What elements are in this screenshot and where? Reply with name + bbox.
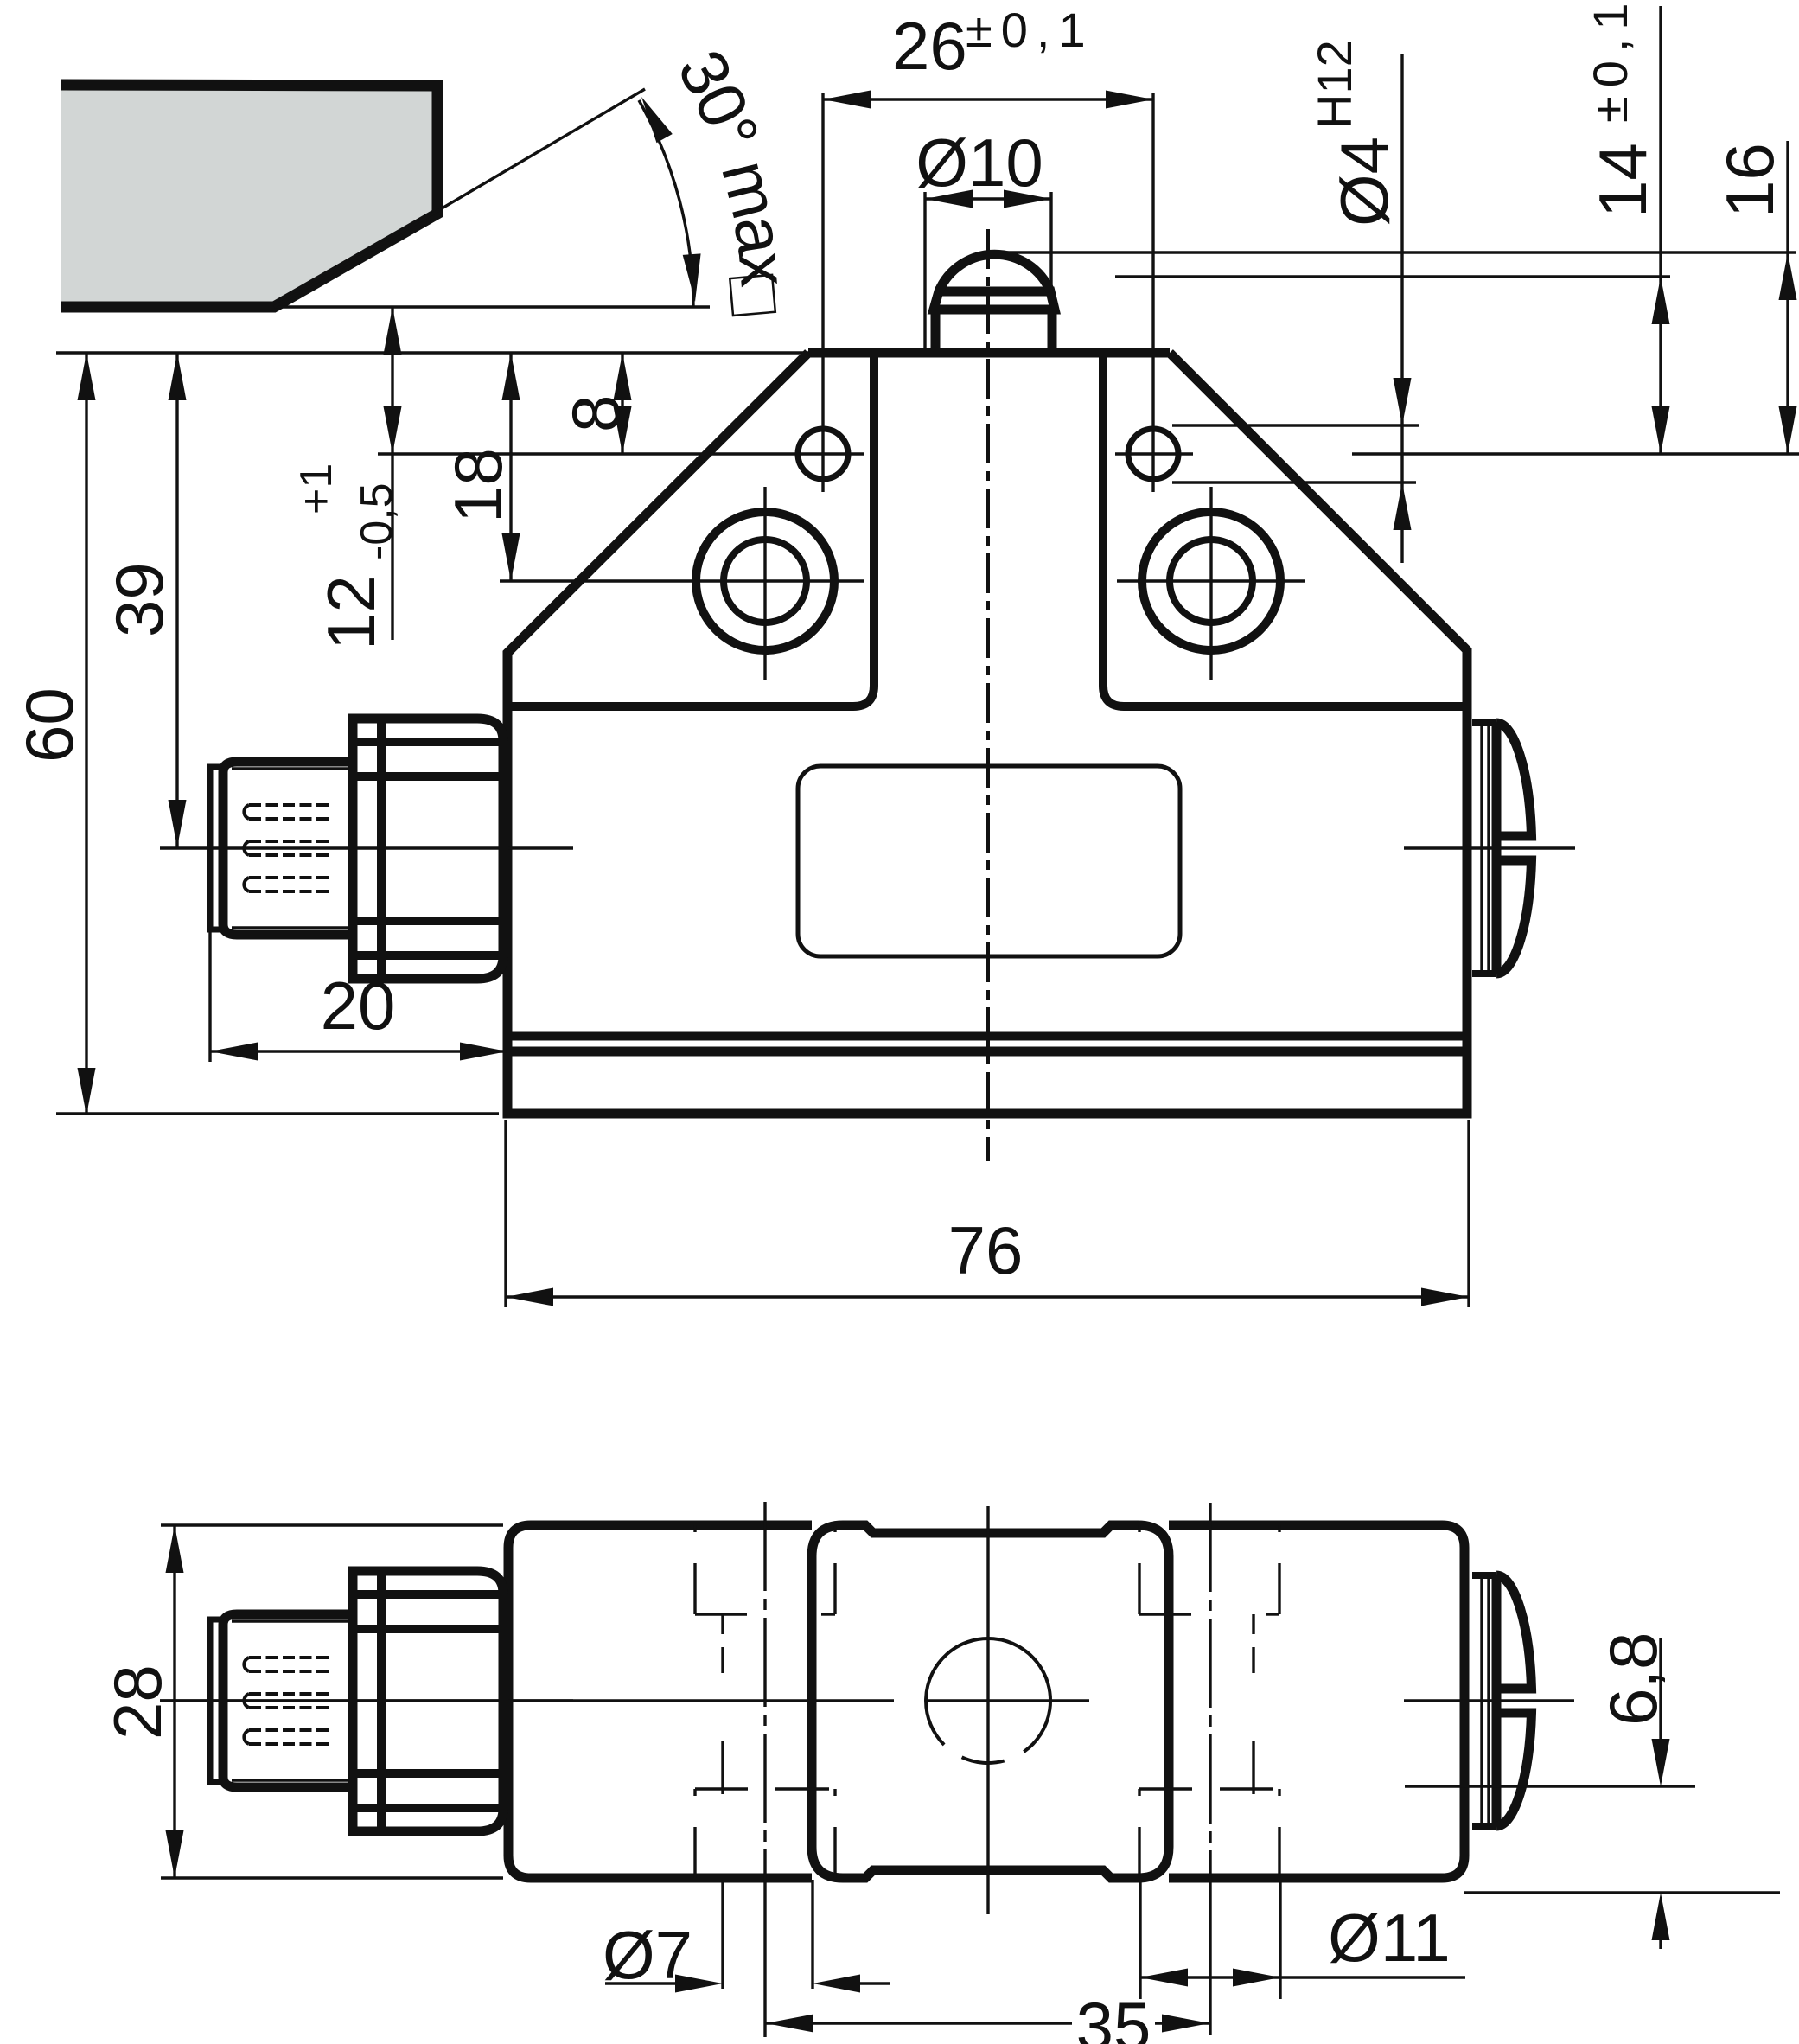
svg-text:Ø7: Ø7 <box>603 1917 692 1993</box>
svg-text:76: 76 <box>948 1212 1024 1288</box>
svg-text:26: 26 <box>892 8 967 84</box>
svg-text:Ø10: Ø10 <box>915 125 1043 201</box>
svg-text:16: 16 <box>1712 143 1788 218</box>
svg-text:±0,1: ±0,1 <box>1583 0 1637 123</box>
svg-text:18: 18 <box>440 448 516 523</box>
svg-text:12: 12 <box>313 575 389 650</box>
svg-text:60: 60 <box>11 687 87 763</box>
svg-text:±0,1: ±0,1 <box>966 3 1094 57</box>
svg-text:Ø4: Ø4 <box>1326 137 1402 227</box>
svg-text:35: 35 <box>1076 1988 1151 2044</box>
svg-text:30° max: 30° max <box>663 38 803 290</box>
svg-text:39: 39 <box>101 562 177 637</box>
svg-text:14: 14 <box>1585 143 1661 218</box>
svg-text:6,8: 6,8 <box>1595 1632 1671 1726</box>
svg-text:-0,5: -0,5 <box>352 482 402 560</box>
svg-text:+1: +1 <box>291 463 341 514</box>
svg-text:Ø11: Ø11 <box>1328 1900 1451 1976</box>
svg-text:H12: H12 <box>1307 40 1362 129</box>
svg-text:8: 8 <box>558 395 634 432</box>
